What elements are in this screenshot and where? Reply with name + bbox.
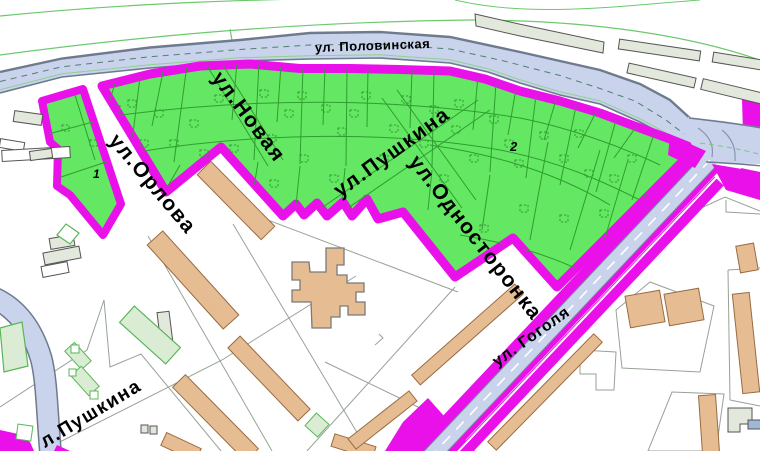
svg-text:1: 1 — [93, 167, 100, 181]
svg-text:2: 2 — [509, 139, 518, 154]
